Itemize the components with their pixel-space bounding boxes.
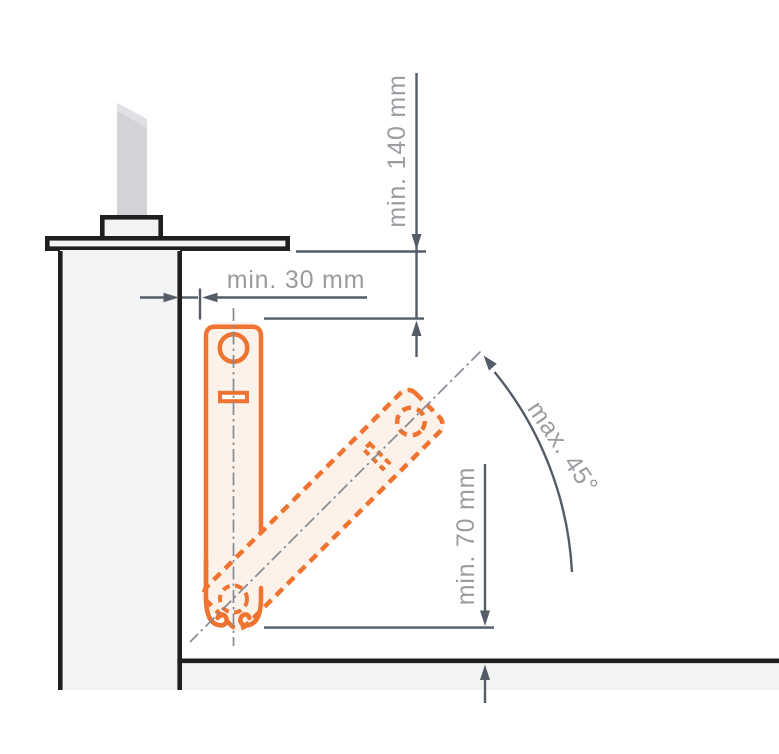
angle-arc [495,372,573,572]
angle-label: max. 45° [522,396,604,499]
dimension-swing-angle: max. 45° [484,356,604,573]
post-blade [117,103,147,216]
post-top-plate [47,238,287,248]
dim140-arrow-down [412,234,422,250]
dim140-arrow-up [412,321,422,337]
post-body-fill [60,250,180,690]
dimension-top-clearance: min. 140 mm [264,73,426,357]
dim70-arrow-down [480,611,490,627]
dim70-label: min. 70 mm [452,467,480,606]
post-cap-block [102,217,160,238]
diagram-canvas: min. 140 mm min. 30 mm min. 70 mm max. 4… [0,0,779,754]
floor-block-fill [182,661,779,690]
angle-arc-arrowhead [484,356,497,371]
dim30-arrow-left [202,293,218,303]
dim140-label: min. 140 mm [383,74,411,227]
dim30-label: min. 30 mm [227,266,366,294]
